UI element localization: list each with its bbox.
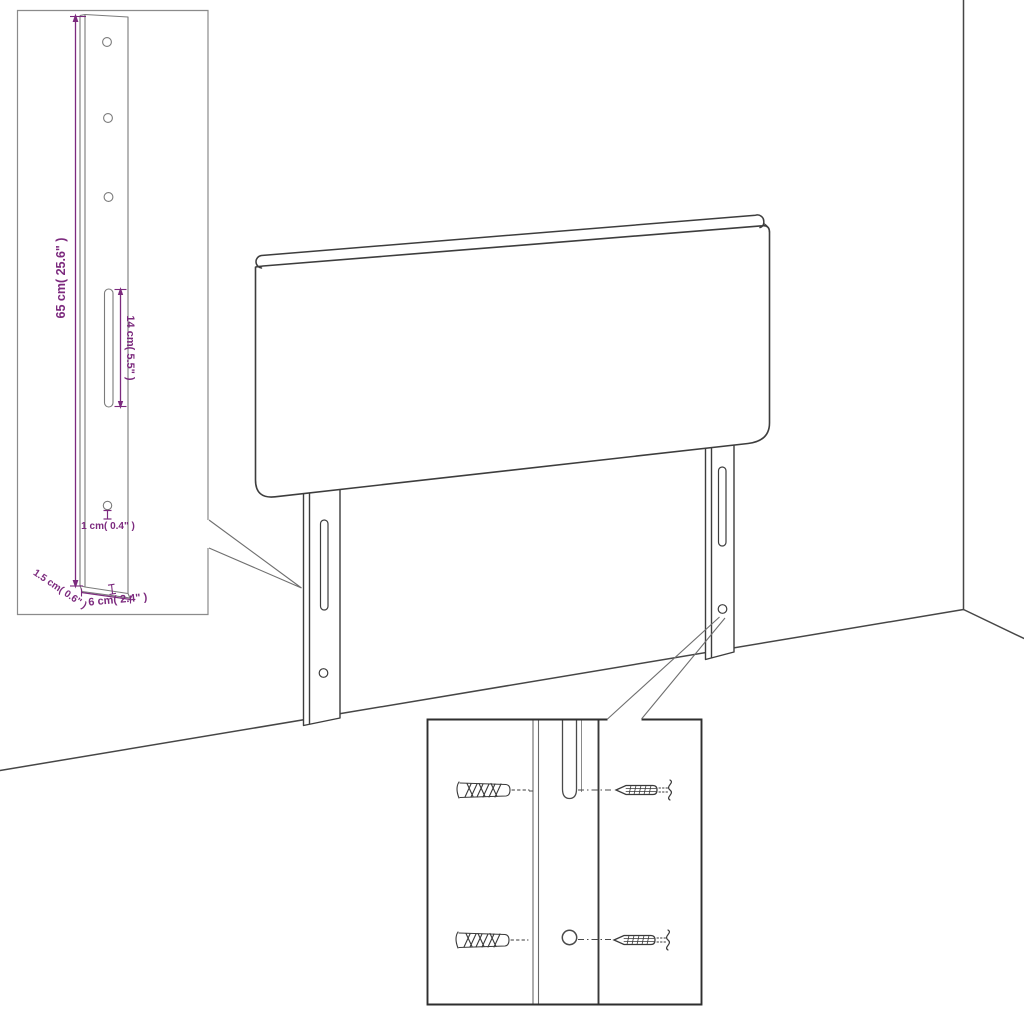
callout-lines xyxy=(209,520,725,719)
dim-hole-label: 1 cm( 0.4" ) xyxy=(81,521,135,532)
floor-line-right xyxy=(964,610,1024,639)
headboard-assembly-diagram: 65 cm( 25.6" ) 14 cm( 5.5" ) 1 cm( 0.4" … xyxy=(0,0,1024,1024)
left-mounting-leg xyxy=(304,483,341,726)
headboard-panel xyxy=(256,215,770,497)
headboard-panel-body xyxy=(256,226,770,497)
dim-slot-label: 14 cm( 5.5" ) xyxy=(124,315,136,380)
leg-dimension-inset: 65 cm( 25.6" ) 14 cm( 5.5" ) 1 cm( 0.4" … xyxy=(18,11,209,615)
hardware-box-background xyxy=(428,720,702,1005)
hardware-detail-box xyxy=(428,720,702,1005)
callout-to-left-leg xyxy=(209,520,302,588)
dim-height-label: 65 cm( 25.6" ) xyxy=(54,238,68,319)
